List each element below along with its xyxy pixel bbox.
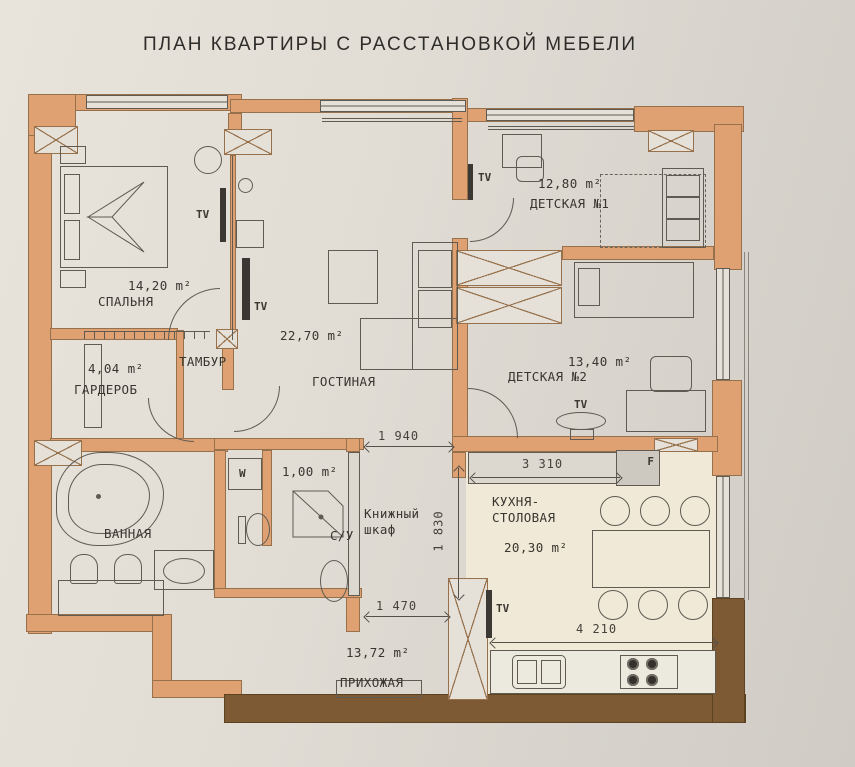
toilet [246,513,270,546]
tv-label: TV [496,602,509,615]
chair [650,356,692,392]
sofa-cushion [666,219,700,241]
drain-dot [96,494,101,499]
washing-machine: W [228,458,262,490]
room-label-living: ГОСТИНАЯ [312,374,375,390]
door-arc-kids2 [468,388,518,438]
decor-circle [238,178,253,193]
room-area-kids2: 13,40 m² [568,354,631,370]
vanity-counter [58,580,164,616]
wall-segment [214,438,364,450]
fridge: F [616,450,660,486]
burner-icon [627,658,639,670]
tv-icon [220,188,226,242]
wall-segment [714,124,742,270]
chair [600,496,630,526]
dimension-label: 3 310 [522,457,563,471]
window [716,268,730,380]
window [320,100,466,112]
sofa-cushion [666,175,700,197]
glazing-line [744,252,749,600]
burner-icon [627,674,639,686]
room-label-wardrobe: ГАРДЕРОБ [74,382,137,398]
tv-base [570,429,594,440]
tv-stand [556,412,606,430]
room-label-hallway: ПРИХОЖАЯ [340,675,403,691]
door-arc-kids1 [470,198,514,242]
sink-basin [541,660,561,684]
dimension-line [366,446,452,447]
dimension-label: 1 940 [378,429,419,443]
wall-segment [26,614,172,632]
toilet-tank [238,516,246,544]
washer-label: W [239,467,246,480]
nightstand [60,146,86,164]
room-label-shower-wc: С/У [330,528,354,544]
wall-segment [452,98,468,200]
sink [70,554,98,584]
column-shaft [224,129,272,155]
window [716,476,730,598]
room-area-bedroom: 14,20 m² [128,278,191,294]
stool [194,146,222,174]
dimension-line [366,616,448,617]
dimension-line [492,642,716,643]
window [486,109,634,121]
room-label-bath: ВАННАЯ [104,526,152,542]
chair [598,590,628,620]
wall-segment [346,596,360,632]
room-area-shower-wc: 1,00 m² [282,464,337,480]
chair [678,590,708,620]
nightstand [60,270,86,288]
exterior-wall [712,598,745,723]
chair [638,590,668,620]
door-arc-bath [148,398,194,442]
tv-icon [468,164,473,200]
dimension-line [458,468,459,598]
plan-title: ПЛАН КВАРТИРЫ С РАССТАНОВКОЙ МЕБЕЛИ [110,34,670,56]
dimension-line [472,477,620,478]
wall-segment [712,380,742,476]
room-label-bedroom: СПАЛЬНЯ [98,294,153,310]
room-label-kids2: ДЕТСКАЯ №2 [508,369,587,385]
bookcase [348,452,360,596]
room-area-living: 22,70 m² [280,328,343,344]
wall-segment [28,94,52,634]
cabinet [236,220,264,248]
burner-icon [646,658,658,670]
pillow [64,174,80,214]
sink [163,558,205,584]
bookcase-label: Книжный шкаф [364,506,442,537]
chair [680,496,710,526]
sofa-cushion [666,197,700,219]
tv-icon [486,590,492,638]
tv-label: TV [254,300,267,313]
wardrobe-closet [456,287,562,324]
fridge-label: F [647,455,654,468]
pillow [64,220,80,260]
curtain-line [488,126,634,130]
sink [114,554,142,584]
tv-label: TV [196,208,209,221]
coffee-table [328,250,378,304]
blanket-fold-icon [86,176,148,258]
door-arc-tambur [234,386,280,432]
room-label-tambur: ТАМБУР [179,354,227,370]
tv-icon [242,258,250,320]
sofa-cushion [418,250,452,288]
wall-segment [346,438,360,452]
window [86,95,228,109]
partition-line [232,156,233,340]
room-label-kitchen: КУХНЯ-СТОЛОВАЯ [492,494,572,525]
pedestal-sink [320,560,348,602]
sink-basin [517,660,537,684]
sofa-chaise [360,318,458,370]
hanger-rod [84,331,210,339]
wardrobe-closet [456,250,562,286]
floorplan-scan: ПЛАН КВАРТИРЫ С РАССТАНОВКОЙ МЕБЕЛИ [0,0,855,767]
dining-table [592,530,710,588]
pillow [578,268,600,306]
curtain-line [322,118,462,122]
room-label-kids1: ДЕТСКАЯ №1 [530,196,609,212]
room-area-kids1: 12,80 m² [538,176,601,192]
tv-label: TV [574,398,587,411]
tv-label: TV [478,171,491,184]
burner-icon [646,674,658,686]
wall-segment [214,450,226,590]
dimension-label: 4 210 [576,622,617,636]
dimension-label: 1 470 [376,599,417,613]
chair [640,496,670,526]
room-area-wardrobe: 4,04 m² [88,361,143,377]
column-shaft [654,438,698,452]
column-shaft [648,130,694,152]
room-area-hallway: 13,72 m² [346,645,409,661]
room-area-kitchen: 20,30 m² [504,540,567,556]
desk [626,390,706,432]
wall-segment [562,246,714,260]
